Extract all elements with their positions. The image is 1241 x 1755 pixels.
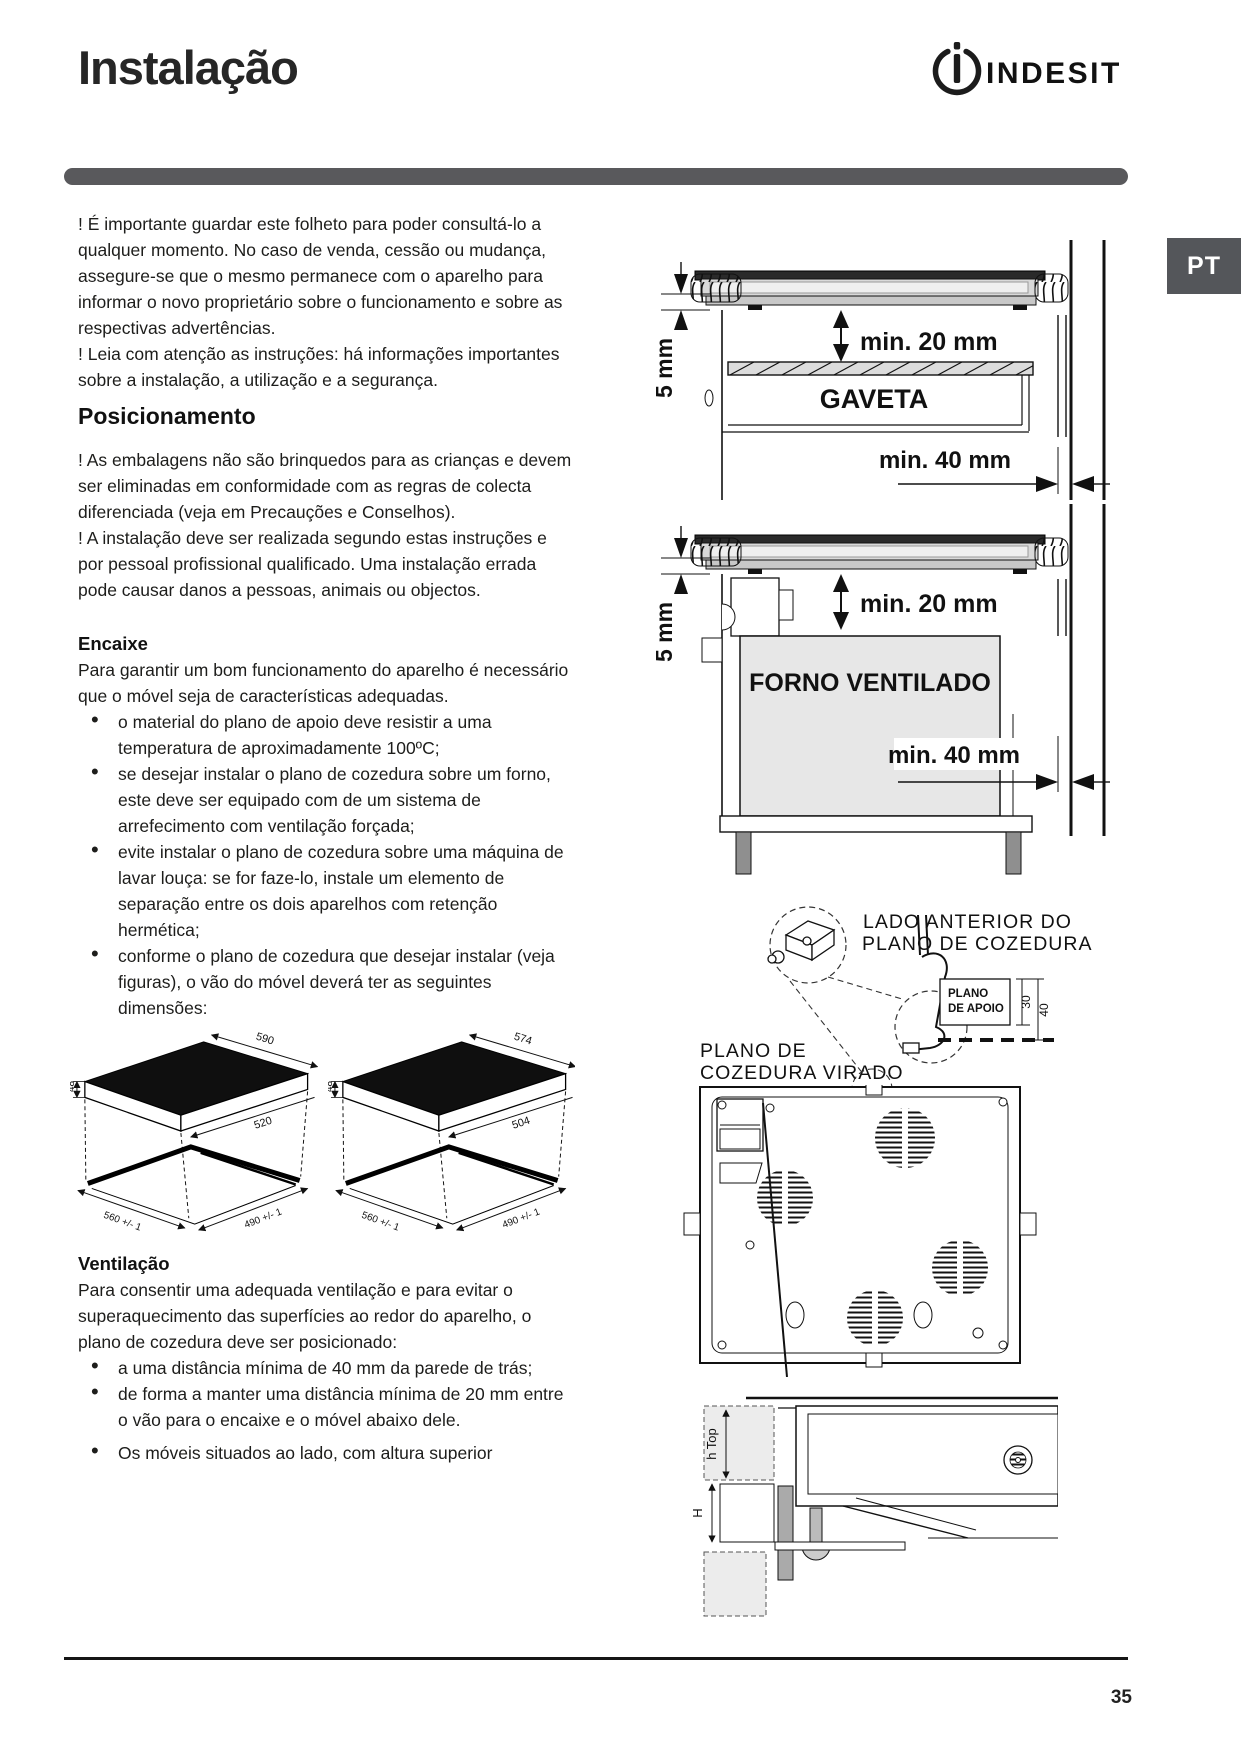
brand-name: INDESIT: [986, 57, 1122, 90]
oven-label: FORNO VENTILADO: [749, 669, 991, 697]
dim-depth: 520: [253, 1115, 274, 1132]
language-tab-pt: PT: [1167, 238, 1241, 294]
flipped-label-line1: PLANO DE: [700, 1040, 807, 1062]
footer-rule: [64, 1657, 1128, 1660]
support-label-line2: DE APOIO: [948, 1003, 1004, 1015]
dim-min-20: min. 20 mm: [860, 328, 998, 356]
hob-cross-section: [691, 535, 1068, 574]
seal-gasket: [691, 538, 741, 566]
dim-30: 30: [1019, 995, 1033, 1009]
dim-40: 40: [1037, 1003, 1051, 1017]
dim-width: 590: [254, 1031, 275, 1048]
language-tab-label: PT: [1187, 252, 1221, 281]
dim-h-top: h Top: [704, 1428, 719, 1460]
list-item: conforme o plano de cozedura que desejar…: [78, 943, 575, 1021]
support-plane-box: [940, 979, 1010, 1025]
dim-height: 48: [70, 1080, 77, 1091]
posicionamento-paragraph-1: ! As embalagens não são brinquedos para …: [78, 447, 575, 525]
figure-hob-590: 590 48 520 560 +/- 1 490 +/- 1: [70, 1029, 318, 1241]
list-item: o material do plano de apoio deve resist…: [78, 709, 575, 761]
dim-5mm: 5 mm: [651, 338, 677, 398]
text-column: ! É importante guardar este folheto para…: [78, 211, 575, 1466]
dim-cutout-width: 560 +/- 1: [360, 1210, 401, 1234]
clamp-bar: [778, 1486, 793, 1580]
seal-gasket: [1035, 538, 1068, 566]
dim-width: 574: [512, 1031, 533, 1048]
posicionamento-paragraph-2: ! A instalação deve ser realizada segund…: [78, 525, 575, 603]
side-bracket: [1020, 1213, 1036, 1235]
lower-cabinet-block: [720, 1484, 774, 1542]
figure-mounting-detail: LADO ANTERIOR DO PLANO DE COZEDURA: [620, 897, 1140, 1097]
cabinet-knob: [705, 390, 713, 406]
logo-i-dot: [954, 42, 960, 50]
side-bracket: [684, 1213, 700, 1235]
drawer-label: GAVETA: [820, 384, 929, 414]
list-item: a uma distância mínima de 40 mm da pared…: [78, 1355, 575, 1381]
figure-oven-section: 5 mm min. 20 mm FORNO VENTILADO min. 40 …: [598, 486, 1113, 886]
list-item: evite instalar o plano de cozedura sobre…: [78, 839, 575, 943]
figure-hob-underside: [620, 1085, 1140, 1382]
page-number: 35: [1088, 1687, 1132, 1709]
encaixe-intro: Para garantir um bom funcionamento do ap…: [78, 657, 575, 709]
intro-paragraph-2: ! Leia com atenção as instruções: há inf…: [78, 341, 575, 393]
figure-side-section: h Top H: [628, 1392, 1058, 1697]
hob-dimension-figures: 590 48 520 560 +/- 1 490 +/- 1: [70, 1029, 575, 1241]
flipped-label-line2: COZEDURA VIRADO: [700, 1062, 904, 1084]
cabinet-leg: [736, 832, 751, 874]
heading-ventilacao: Ventilação: [78, 1251, 575, 1277]
dim-min-40: min. 40 mm: [888, 742, 1020, 769]
dim-h: H: [690, 1508, 705, 1517]
seal-gasket: [691, 274, 741, 302]
oven-box: [740, 636, 1000, 816]
ventilacao-bullet-list: a uma distância mínima de 40 mm da pared…: [78, 1355, 575, 1466]
hob-cross-section: [691, 271, 1068, 310]
list-item: de forma a manter uma distância mínima d…: [78, 1381, 575, 1433]
clamp-screw: [810, 1508, 822, 1546]
support-label-line1: PLANO: [948, 988, 988, 1000]
front-side-label-line1: LADO ANTERIOR DO: [863, 911, 1072, 933]
dim-cutout-width: 560 +/- 1: [102, 1210, 143, 1234]
front-side-label-line2: PLANO DE COZEDURA: [862, 933, 1092, 955]
dim-5mm: 5 mm: [651, 602, 677, 662]
list-item: Os móveis situados ao lado, com altura s…: [78, 1440, 575, 1466]
heading-posicionamento: Posicionamento: [78, 403, 575, 429]
burner-housing: [731, 578, 779, 636]
dim-cutout-depth: 490 +/- 1: [243, 1206, 284, 1231]
dim-depth: 504: [510, 1115, 531, 1132]
dim-min-40: min. 40 mm: [879, 447, 1011, 474]
figure-drawer-section: 5 mm min. 20 mm GAVETA min. 40 mm: [598, 222, 1113, 505]
logo-i-bar: [954, 54, 960, 83]
header-divider-bar: [64, 168, 1128, 185]
dim-height: 48: [328, 1080, 335, 1091]
fixing-bracket: [768, 921, 834, 963]
figure-hob-574: 574 48 504 560 +/- 1 490 +/- 1: [328, 1029, 576, 1241]
hob-body-section: [796, 1406, 1058, 1538]
heading-encaixe: Encaixe: [78, 631, 575, 657]
counter-block: [704, 1552, 766, 1616]
page-title: Instalação: [78, 40, 298, 95]
cutout-far-edges: [88, 1147, 300, 1184]
dim-min-20: min. 20 mm: [860, 590, 998, 618]
encaixe-bullet-list: o material do plano de apoio deve resist…: [78, 709, 575, 1021]
dim-cutout-depth: 490 +/- 1: [500, 1206, 541, 1231]
intro-paragraph-1: ! É importante guardar este folheto para…: [78, 211, 575, 341]
seal-gasket: [1035, 274, 1068, 302]
cutout-far-edges: [345, 1147, 557, 1184]
manual-page: Instalação INDESIT PT ! É importante gua…: [0, 0, 1241, 1755]
brand-logo: INDESIT: [922, 38, 1134, 113]
cabinet-leg: [1006, 832, 1021, 874]
ventilacao-intro: Para consentir uma adequada ventilação e…: [78, 1277, 575, 1355]
list-item: se desejar instalar o plano de cozedura …: [78, 761, 575, 839]
